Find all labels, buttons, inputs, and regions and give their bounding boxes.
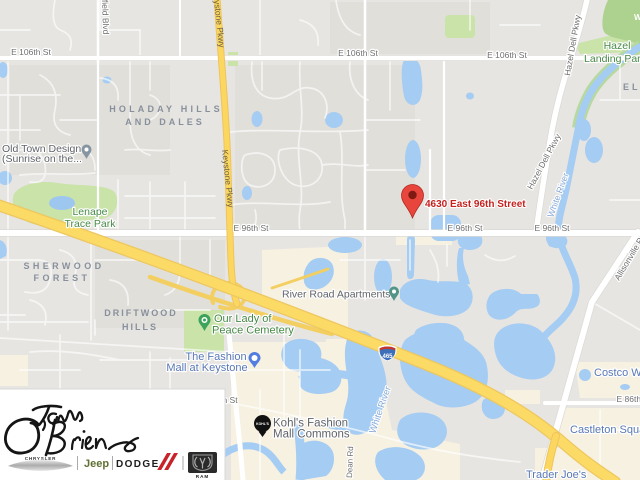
svg-text:SHERWOOD: SHERWOOD: [23, 261, 104, 271]
svg-text:Our Lady of: Our Lady of: [214, 313, 272, 325]
svg-text:Trace Park: Trace Park: [65, 218, 117, 230]
svg-text:E 96th St: E 96th St: [234, 223, 270, 233]
svg-text:(Sunrise on the...: (Sunrise on the...: [2, 153, 82, 165]
svg-text:W: W: [634, 13, 640, 22]
svg-text:E 106th St: E 106th St: [338, 48, 378, 58]
svg-text:Landing Park: Landing Park: [584, 53, 640, 65]
svg-text:field Blvd: field Blvd: [100, 0, 111, 35]
svg-text:ELLER: ELLER: [623, 82, 640, 92]
svg-text:FOREST: FOREST: [34, 273, 91, 283]
svg-text:KOHL'S: KOHL'S: [256, 422, 269, 426]
svg-text:River Road Apartments: River Road Apartments: [282, 289, 391, 301]
svg-text:E 106th St: E 106th St: [487, 50, 527, 60]
svg-text:DODGE: DODGE: [116, 459, 160, 470]
svg-text:Mall at Keystone: Mall at Keystone: [166, 362, 247, 374]
svg-text:Dean Rd: Dean Rd: [345, 446, 355, 478]
svg-text:DRIFTWOOD: DRIFTWOOD: [104, 308, 178, 318]
svg-text:Castleton Squa: Castleton Squa: [570, 424, 640, 436]
svg-text:465: 465: [382, 354, 393, 360]
svg-text:Hazel: Hazel: [604, 40, 631, 52]
svg-text:RAM: RAM: [196, 474, 209, 479]
svg-text:Mall Commons: Mall Commons: [273, 429, 350, 441]
svg-text:E 96th St: E 96th St: [448, 223, 484, 233]
svg-text:E 96th St: E 96th St: [535, 223, 571, 233]
svg-text:Lenape: Lenape: [72, 206, 107, 218]
svg-text:4630 East 96th Street: 4630 East 96th Street: [425, 199, 526, 210]
svg-text:AND DALES: AND DALES: [125, 117, 205, 127]
svg-text:HOLADAY HILLS: HOLADAY HILLS: [109, 104, 223, 114]
svg-text:Costco Wh: Costco Wh: [594, 367, 640, 379]
svg-text:E 86th St: E 86th St: [617, 394, 640, 404]
svg-text:Jeep: Jeep: [84, 458, 109, 470]
svg-text:Trader Joe's: Trader Joe's: [526, 469, 587, 480]
svg-text:Peace Cemetery: Peace Cemetery: [212, 325, 294, 337]
svg-text:HILLS: HILLS: [122, 322, 158, 332]
svg-text:E 106th St: E 106th St: [11, 47, 51, 57]
